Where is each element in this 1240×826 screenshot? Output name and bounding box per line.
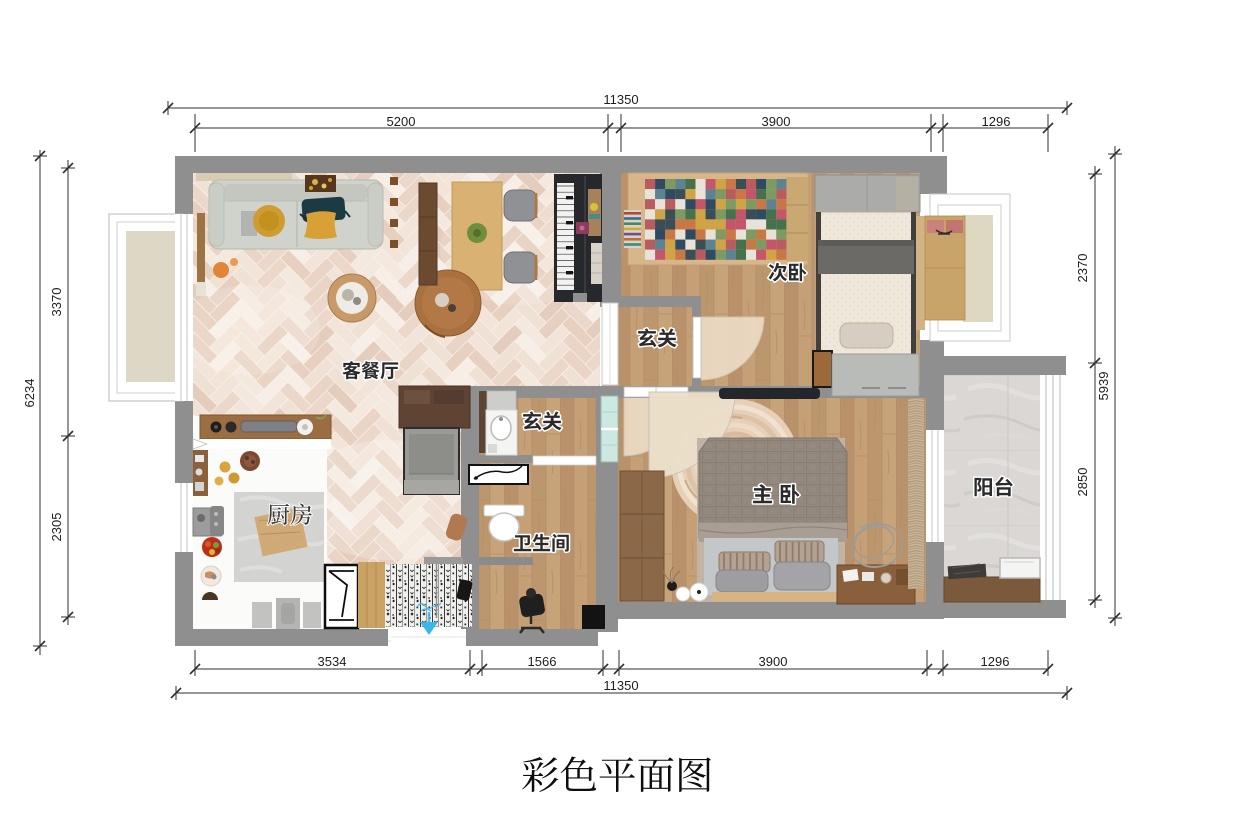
svg-text:2850: 2850 <box>1075 468 1090 497</box>
svg-text:2370: 2370 <box>1075 254 1090 283</box>
svg-text:11350: 11350 <box>603 678 638 693</box>
svg-text:3900: 3900 <box>759 654 788 669</box>
svg-text:3370: 3370 <box>49 288 64 317</box>
svg-text:1296: 1296 <box>981 654 1010 669</box>
svg-text:3534: 3534 <box>318 654 347 669</box>
svg-text:5939: 5939 <box>1096 372 1111 401</box>
svg-text:11350: 11350 <box>603 92 638 107</box>
svg-text:5200: 5200 <box>387 114 416 129</box>
svg-text:1296: 1296 <box>982 114 1011 129</box>
svg-text:1566: 1566 <box>528 654 557 669</box>
svg-text:2305: 2305 <box>49 513 64 542</box>
svg-text:6234: 6234 <box>22 379 37 408</box>
svg-text:3900: 3900 <box>762 114 791 129</box>
